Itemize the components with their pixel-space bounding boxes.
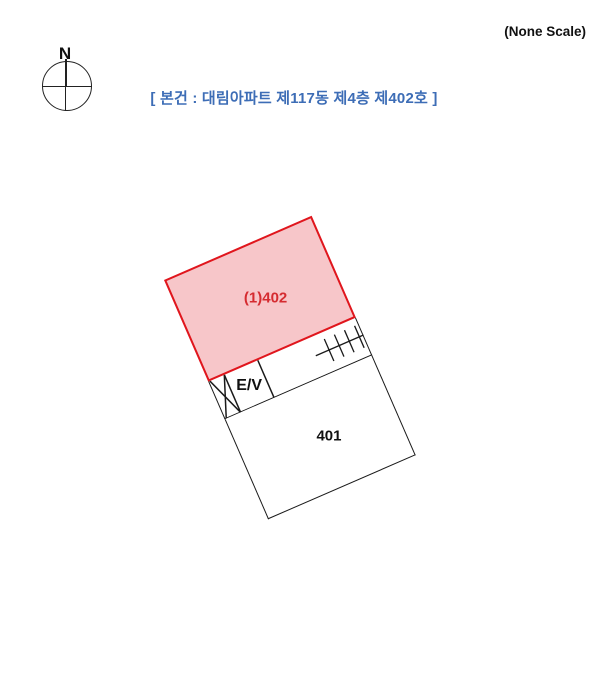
scale-note: (None Scale) [504, 24, 586, 39]
compass-needle-icon [65, 59, 68, 87]
floor-plan: (1)402 [164, 216, 416, 520]
compass-icon: N [16, 18, 86, 103]
appraisal-floor-plan-page: N (None Scale) [ 본건 : 대림아파트 제117동 제4층 제4… [0, 0, 600, 700]
compass-needle-south [65, 87, 66, 111]
compass-east-west-axis [42, 86, 92, 87]
adjacent-unit-label: 401 [316, 428, 341, 445]
elevator-label: E/V [236, 377, 262, 395]
page-title: [ 본건 : 대림아파트 제117동 제4층 제402호 ] [131, 87, 457, 108]
subject-unit-label: (1)402 [244, 289, 287, 306]
